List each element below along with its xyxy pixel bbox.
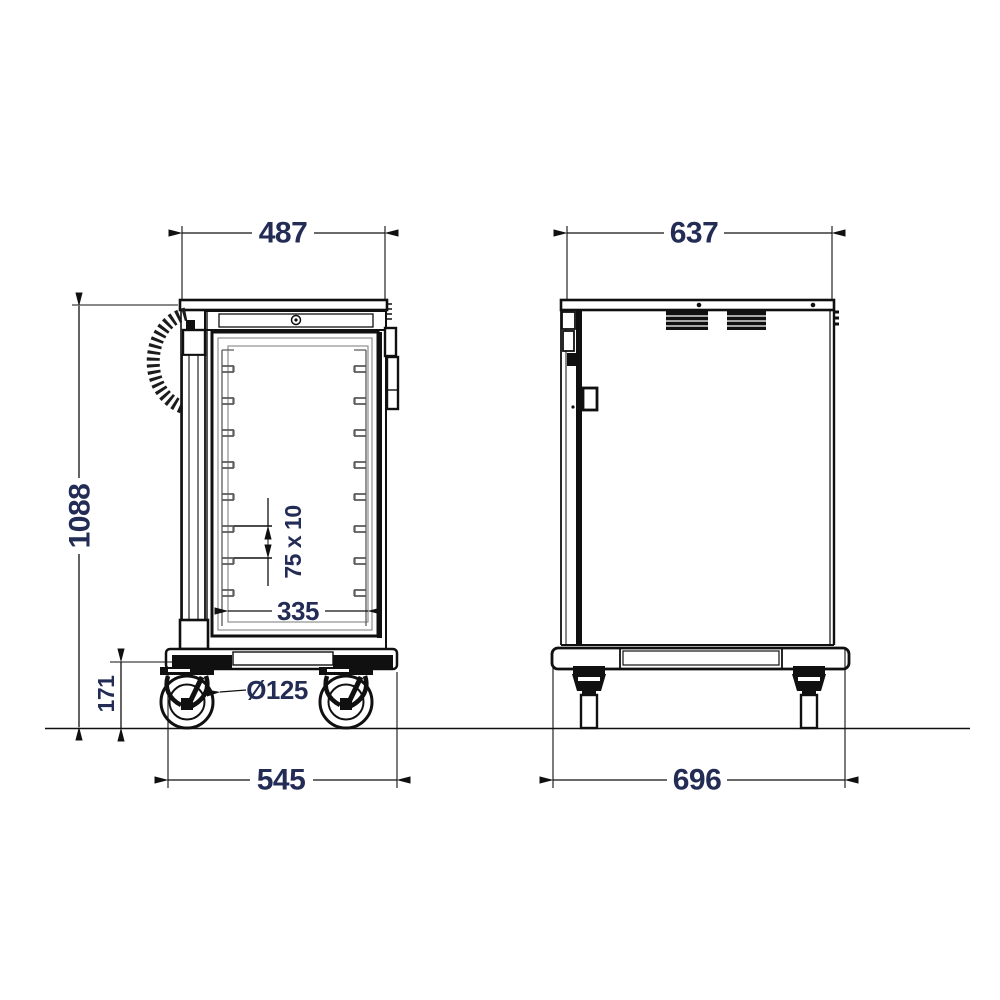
handle-post — [182, 355, 205, 620]
dim-label-637: 637 — [670, 217, 719, 250]
caster-wheel-front-right — [319, 667, 373, 728]
dim-label-696: 696 — [673, 764, 722, 797]
dim-label-d125: Ø125 — [246, 675, 308, 705]
dimension-rail-slot: 75 x 10 — [234, 498, 306, 586]
caster-wheel-side-right — [792, 666, 826, 728]
wheel-edge — [581, 695, 597, 728]
junction-box — [183, 330, 205, 355]
latch-notch-1 — [578, 392, 584, 396]
dimension-front-top-width: 487 — [182, 217, 385, 300]
right-rail — [354, 350, 366, 626]
dim-label-487: 487 — [259, 217, 308, 250]
dim-label-1088: 1088 — [64, 484, 97, 549]
door-hinge-block-lower — [567, 353, 576, 366]
dimension-caster-diameter: Ø125 — [220, 675, 308, 705]
lid-fastener-dot-2 — [811, 303, 816, 308]
vent-grille-1 — [664, 311, 710, 330]
dim-label-75x10: 75 x 10 — [280, 505, 306, 578]
door-hinge-block-upper — [562, 312, 575, 329]
leader-line — [220, 690, 246, 692]
front-top-lid — [180, 300, 387, 310]
dim-label-171: 171 — [93, 675, 119, 713]
front-base-left-band — [172, 655, 232, 669]
side-door-edge-bar — [576, 310, 582, 645]
lid-fastener-dot-1 — [697, 303, 702, 308]
front-view — [153, 300, 398, 728]
door-hinge-upper — [385, 328, 396, 356]
door-hinge-block-mid — [563, 331, 574, 351]
lock-keyhole-dot — [294, 318, 297, 321]
latch-notch-2 — [578, 401, 584, 405]
dim-label-545: 545 — [257, 764, 306, 797]
technical-drawing: 487 637 1088 171 335 75 x 10 Ø1 — [0, 0, 1000, 1000]
tray-rails — [222, 350, 366, 626]
door-window-inner-frame — [228, 346, 368, 622]
front-base-right-band — [333, 655, 393, 669]
caster-fork-slit — [578, 677, 600, 681]
drawing-canvas: 487 637 1088 171 335 75 x 10 Ø1 — [0, 0, 1000, 1000]
caster-mount-slit — [168, 669, 190, 672]
caster-mount-plate — [573, 666, 605, 674]
latch-pin-dot — [571, 405, 574, 408]
door-window-outer-frame — [212, 332, 378, 636]
door-window-mid-frame — [218, 338, 372, 630]
vent-grille-2 — [725, 311, 768, 330]
right-rail-ticks — [354, 366, 366, 596]
dimension-side-top-depth: 637 — [567, 217, 832, 300]
latch-body — [583, 388, 597, 410]
door-latch — [571, 388, 597, 410]
caster-wheel-side-left — [572, 666, 606, 728]
handle-foot-block — [180, 620, 208, 649]
door-hinge-lower — [387, 357, 398, 409]
dim-label-335: 335 — [277, 596, 319, 626]
side-base-center-panel — [623, 651, 779, 665]
front-base-center-panel — [233, 652, 333, 665]
side-view — [552, 300, 849, 728]
